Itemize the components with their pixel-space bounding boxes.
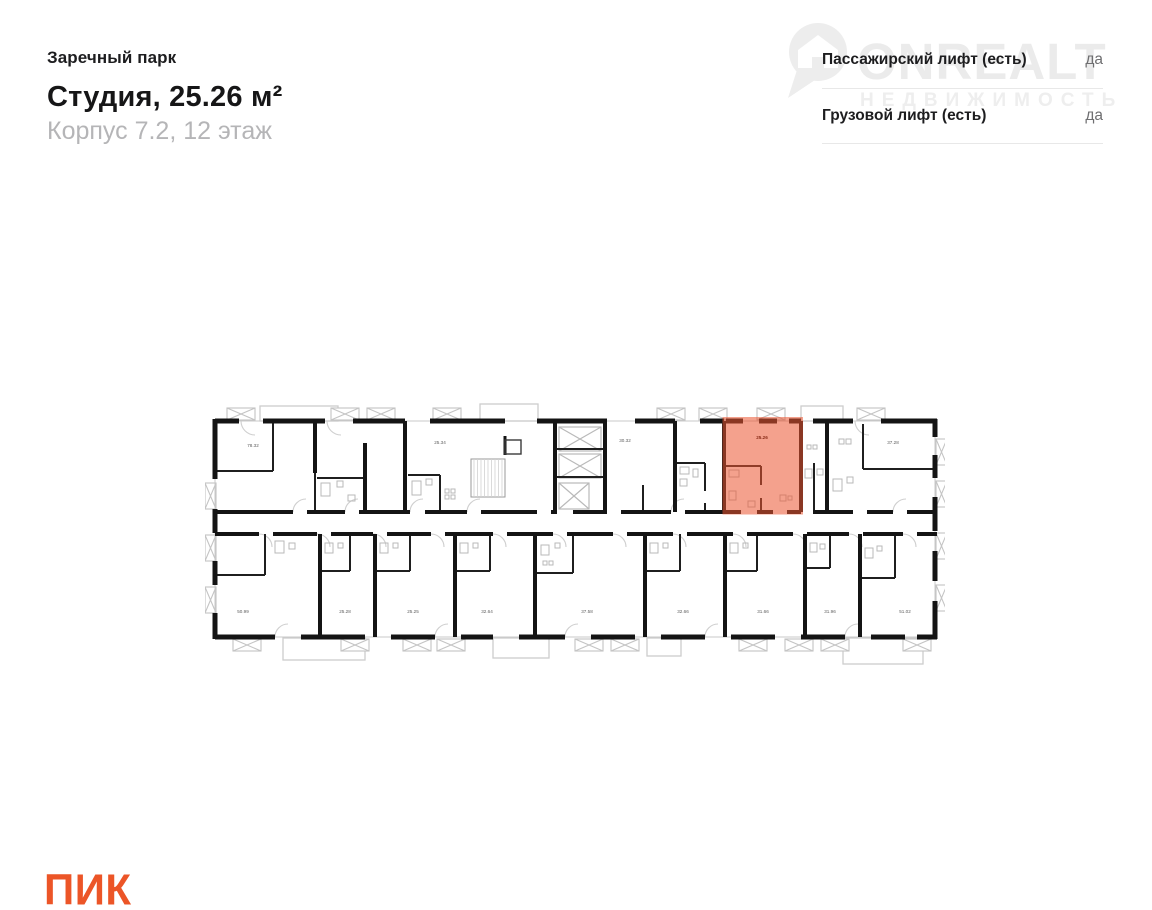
room-area-label: 51.02 bbox=[899, 609, 911, 614]
passenger-lift-row: Пассажирский лифт (есть) да bbox=[822, 51, 1103, 69]
divider bbox=[822, 143, 1103, 144]
corridor-walls bbox=[215, 512, 937, 534]
highlighted-unit[interactable] bbox=[723, 417, 804, 515]
room-area-label: 78.32 bbox=[247, 443, 259, 448]
highlighted-unit-area-label: 25.26 bbox=[756, 435, 768, 440]
listing-page: Заречный парк Студия, 25.26 м² Корпус 7.… bbox=[0, 0, 1152, 910]
room-area-label: 32.66 bbox=[677, 609, 689, 614]
passenger-lift-label: Пассажирский лифт (есть) bbox=[822, 51, 1027, 69]
room-area-label: 32.64 bbox=[481, 609, 493, 614]
room-area-label: 25.25 bbox=[407, 609, 419, 614]
header: Заречный парк Студия, 25.26 м² Корпус 7.… bbox=[47, 48, 282, 146]
staircase bbox=[471, 436, 521, 497]
door-arcs bbox=[241, 421, 916, 637]
elevator-shaft-icon bbox=[559, 427, 601, 509]
passenger-lift-value: да bbox=[1085, 51, 1103, 69]
pik-logo[interactable]: ПИК bbox=[44, 868, 132, 910]
page-subtitle: Корпус 7.2, 12 этаж bbox=[47, 117, 282, 146]
room-area-label: 37.28 bbox=[887, 440, 899, 445]
floor-plan: 78.32 25.34 30.32 37.28 50.99 25.28 25.2… bbox=[205, 403, 945, 670]
room-area-label: 37.58 bbox=[581, 609, 593, 614]
room-area-label: 25.34 bbox=[434, 440, 446, 445]
room-area-label: 31.96 bbox=[824, 609, 836, 614]
room-area-label: 25.28 bbox=[339, 609, 351, 614]
room-area-label: 31.66 bbox=[757, 609, 769, 614]
room-area-label: 30.32 bbox=[619, 438, 631, 443]
project-name: Заречный парк bbox=[47, 48, 282, 68]
cargo-lift-label: Грузовой лифт (есть) bbox=[822, 107, 986, 125]
cargo-lift-value: да bbox=[1085, 107, 1103, 125]
floor-plan-svg: 78.32 25.34 30.32 37.28 50.99 25.28 25.2… bbox=[205, 403, 945, 670]
room-area-label: 50.99 bbox=[237, 609, 249, 614]
page-title: Студия, 25.26 м² bbox=[47, 81, 282, 114]
divider bbox=[822, 88, 1103, 89]
cargo-lift-row: Грузовой лифт (есть) да bbox=[822, 107, 1103, 125]
